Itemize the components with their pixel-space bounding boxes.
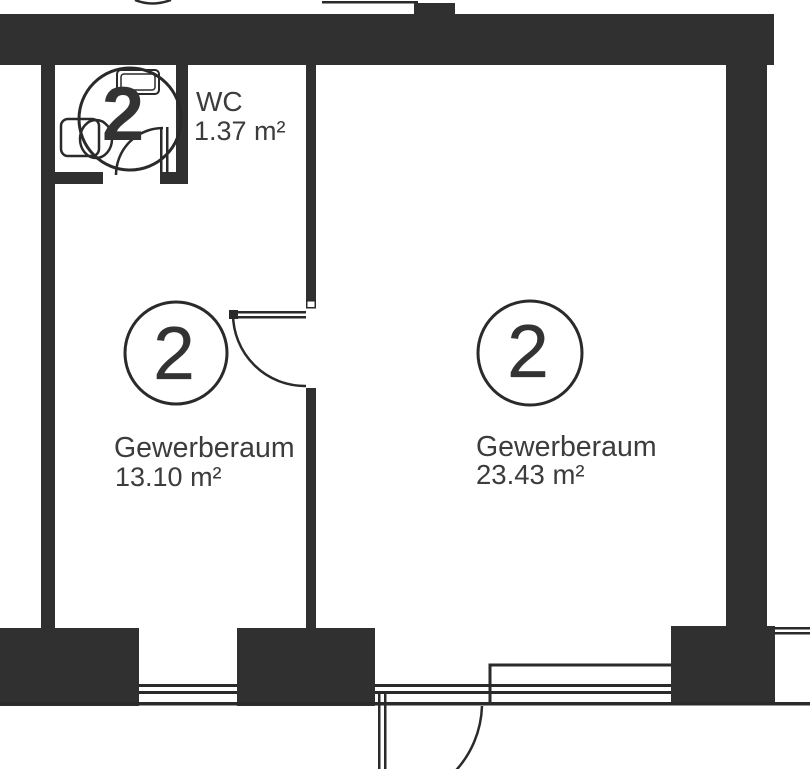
svg-text:13.10 m²: 13.10 m²: [115, 462, 222, 492]
svg-text:WC: WC: [196, 86, 243, 117]
svg-text:Gewerberaum: Gewerberaum: [114, 432, 295, 464]
svg-text:2: 2: [507, 309, 549, 393]
svg-text:2: 2: [102, 72, 144, 157]
svg-text:1.37 m²: 1.37 m²: [194, 116, 286, 146]
svg-text:23.43 m²: 23.43 m²: [476, 459, 585, 490]
svg-text:2: 2: [153, 311, 195, 395]
